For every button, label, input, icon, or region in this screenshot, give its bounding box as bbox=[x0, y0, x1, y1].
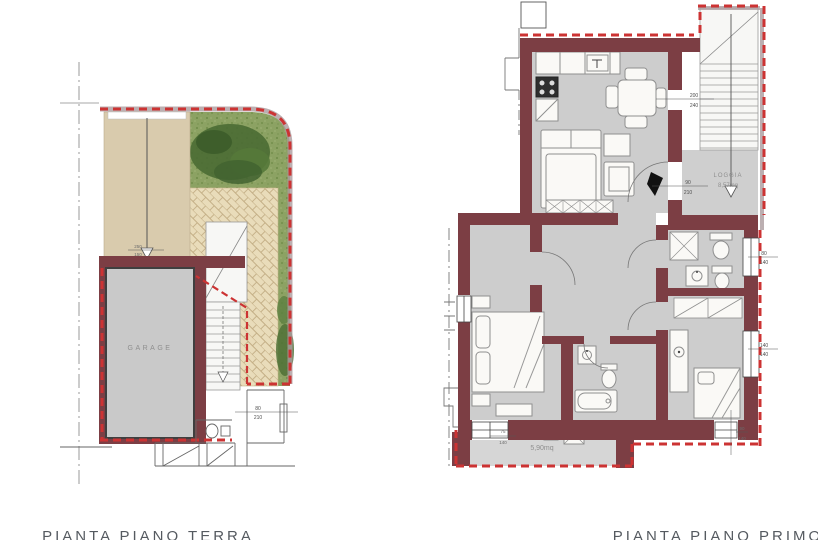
bathtub bbox=[575, 390, 617, 412]
window-right-upper-dim-bottom: 140 bbox=[760, 260, 769, 266]
floorplan-sheet: 250 150 GARAGE bbox=[0, 0, 818, 540]
loggia-door-dim-bottom: 240 bbox=[690, 103, 699, 109]
chair bbox=[606, 86, 618, 108]
loggia-door-dim-top: 200 bbox=[690, 93, 699, 99]
chair bbox=[656, 88, 666, 108]
plan-titles: PIANTA PIANO TERRA PIANTA PIANO PRIMO bbox=[42, 528, 818, 540]
window-right-lower-dim-bottom: 140 bbox=[760, 352, 769, 358]
washbasin bbox=[686, 266, 708, 286]
chair bbox=[625, 68, 647, 80]
floorplan-drawing: 250 150 GARAGE bbox=[0, 0, 818, 540]
table bbox=[618, 80, 656, 116]
loggia-area-label: 8,57mq bbox=[718, 183, 738, 189]
window-right-upper-dim-top: 80 bbox=[761, 251, 767, 257]
sidewalk-strip bbox=[108, 112, 186, 119]
window-left-bedroom bbox=[457, 296, 471, 322]
bottom-window-dim-bottom: 140 bbox=[738, 436, 746, 441]
pillow bbox=[476, 352, 490, 384]
window-bottom bbox=[715, 422, 737, 438]
dresser bbox=[496, 404, 532, 416]
garage-floor bbox=[106, 268, 194, 438]
pillow bbox=[698, 372, 714, 384]
ramp-dim-top: 250 bbox=[134, 244, 142, 249]
terrace-floor bbox=[458, 440, 630, 466]
desk bbox=[670, 330, 688, 392]
ground-floor-title: PIANTA PIANO TERRA bbox=[42, 528, 254, 540]
first-floor-title: PIANTA PIANO PRIMO bbox=[613, 528, 818, 540]
terrace-window-dim-top: 75 bbox=[500, 429, 506, 434]
terrace-area-label: 5,90mq bbox=[530, 445, 553, 452]
chair bbox=[625, 116, 647, 128]
pillow bbox=[476, 316, 490, 348]
loggia-label: LOGGIA bbox=[713, 173, 742, 179]
ground-floor-plan: 250 150 GARAGE bbox=[60, 62, 298, 487]
coffee-table bbox=[604, 134, 630, 156]
stove bbox=[536, 77, 558, 97]
nightstand bbox=[472, 296, 490, 308]
kitchen-sink bbox=[587, 55, 608, 71]
sideboard-wardrobe bbox=[546, 200, 613, 213]
window-right-lower bbox=[743, 331, 759, 377]
window-right-lower-dim-top: 140 bbox=[760, 343, 769, 349]
neighbor-toilet bbox=[206, 424, 230, 438]
door-dim-bottom: 210 bbox=[254, 415, 263, 421]
door-dim-top: 80 bbox=[255, 406, 261, 412]
first-floor-plan: 200 240 90 210 80 140 140 140 75 140 90 … bbox=[444, 2, 778, 470]
terrace-window-dim-bottom: 140 bbox=[499, 440, 507, 445]
property-line bbox=[60, 62, 99, 487]
entry-dim-bottom: 210 bbox=[684, 190, 693, 196]
nightstand bbox=[472, 394, 490, 406]
driveway-ramp: 250 150 bbox=[104, 112, 194, 263]
garage-label: GARAGE bbox=[128, 345, 173, 352]
closet-row bbox=[674, 298, 742, 318]
bottom-window-dim-top: 90 bbox=[739, 426, 745, 431]
entry-dim-top: 90 bbox=[685, 180, 691, 186]
